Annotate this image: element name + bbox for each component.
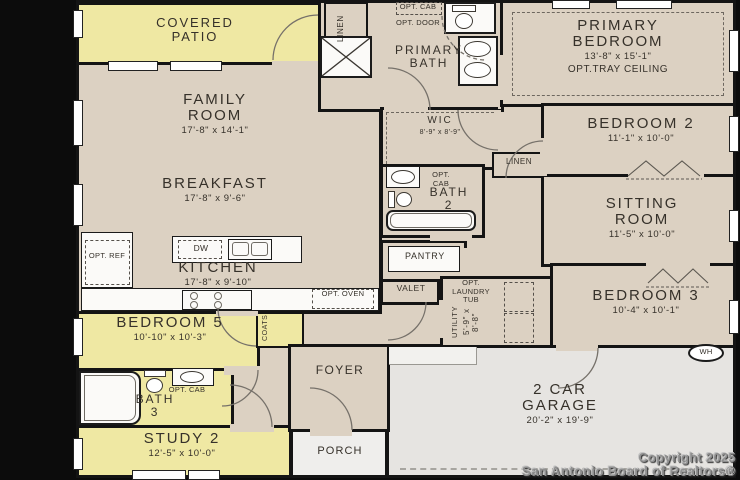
- door-gap-pantry: [462, 248, 469, 276]
- door-gap-primary-bedroom: [499, 55, 506, 100]
- window: [552, 0, 590, 9]
- wic-label: WIC 8'-9" x 8'-9": [390, 116, 490, 136]
- foyer-label: FOYER: [302, 364, 378, 377]
- breakfast-label: BREAKFAST 17'-8" x 9'-6": [105, 176, 325, 204]
- bath3-label: BATH 3: [128, 393, 182, 419]
- opt-cab-top-label: OPT. CAB: [398, 3, 438, 12]
- window: [108, 61, 158, 71]
- window: [73, 100, 83, 146]
- sitting-dims: 11'-5" x 10'-0": [572, 230, 712, 240]
- garage-dims: 20'-2" x 19'-9": [480, 416, 640, 426]
- window: [73, 318, 83, 356]
- window: [729, 210, 739, 242]
- watermark-copyright: Copyright 2025: [522, 451, 736, 465]
- washer-box: [504, 282, 534, 312]
- pantry-label: PANTRY: [392, 252, 458, 262]
- study2-name: STUDY 2: [92, 431, 272, 447]
- opt-ref-box: [85, 240, 130, 285]
- window: [188, 470, 220, 480]
- floor-plan: COVERED PATIO FAMILY ROOM 17'-8" x 14'-1…: [0, 0, 740, 480]
- utility-dims: 5'-9" x 8'-8": [462, 298, 480, 346]
- toilet-tank: [144, 370, 166, 377]
- burner: [190, 301, 198, 309]
- sitting-name: SITTING ROOM: [596, 196, 688, 228]
- kitchen-label: KITCHEN 17'-8" x 9'-10": [128, 260, 308, 288]
- burner: [214, 292, 222, 300]
- breakfast-name: BREAKFAST: [105, 176, 325, 192]
- bedroom5-name: BEDROOM 5: [88, 315, 252, 331]
- door-gap-garage: [556, 343, 598, 351]
- window: [729, 30, 739, 72]
- bath2-label: BATH 2: [424, 186, 474, 212]
- primary-bedroom-dims: 13'-8" x 15'-1": [508, 52, 728, 62]
- family-room-label: FAMILY ROOM 17'-8" x 14'-1": [140, 92, 290, 137]
- toilet-tank: [452, 5, 476, 12]
- opt-door-label: OPT. DOOR: [396, 19, 440, 28]
- primary-bedroom-name: PRIMARY BEDROOM: [546, 18, 691, 50]
- dw-label: DW: [182, 244, 220, 253]
- bedroom3-dims: 10'-4" x 10'-1": [566, 306, 726, 316]
- bath3-name: BATH 3: [135, 393, 175, 419]
- kitchen-dims: 17'-8" x 9'-10": [128, 278, 308, 288]
- valet-label: VALET: [384, 284, 438, 293]
- sitting-label: SITTING ROOM 11'-5" x 10'-0": [572, 196, 712, 241]
- window: [73, 438, 83, 470]
- family-room-dims: 17'-8" x 14'-1": [140, 126, 290, 136]
- primary-bath-label: PRIMARY BATH: [374, 44, 484, 70]
- door-gap-bedroom-2: [540, 138, 547, 176]
- watermark-board: San Antonio Board of Realtors®: [522, 465, 736, 479]
- window: [73, 184, 83, 226]
- water-heater-label: WH: [690, 348, 722, 356]
- window: [616, 0, 672, 9]
- study2-dims: 12'-5" x 10'-0": [92, 449, 272, 459]
- bedroom2-name: BEDROOM 2: [556, 116, 726, 132]
- study2-label: STUDY 2 12'-5" x 10'-0": [92, 431, 272, 459]
- covered-patio-label: COVERED PATIO: [130, 16, 260, 44]
- garage-stoop: [389, 347, 477, 365]
- garage-label: 2 CAR GARAGE 20'-2" x 19'-9": [480, 382, 640, 427]
- bath2-sink: [391, 170, 415, 184]
- utility-name: UTILITY: [450, 298, 459, 346]
- door-gap-utility: [439, 300, 446, 338]
- opt-ref-label: OPT. REF: [86, 252, 128, 261]
- bedroom3-name: BEDROOM 3: [566, 288, 726, 304]
- door-gap-front-door: [310, 428, 352, 436]
- burner: [214, 301, 222, 309]
- linen-top-label: LINEN: [336, 10, 345, 48]
- porch-label: PORCH: [306, 446, 374, 458]
- covered-patio-name: COVERED PATIO: [145, 16, 245, 44]
- primary-bedroom-label: PRIMARY BEDROOM 13'-8" x 15'-1" OPT.TRAY…: [508, 18, 728, 75]
- bedroom2-dims: 11'-1" x 10'-0": [556, 134, 726, 144]
- toilet-bowl: [396, 192, 412, 207]
- family-room-name: FAMILY ROOM: [169, 92, 261, 124]
- garage-name: 2 CAR GARAGE: [514, 382, 606, 414]
- watermark: Copyright 2025 San Antonio Board of Real…: [522, 451, 736, 479]
- wic-dims: 8'-9" x 8'-9": [390, 129, 490, 137]
- coats-label: COATS: [262, 310, 269, 346]
- opt-oven-label: OPT. OVEN: [316, 290, 370, 299]
- window: [729, 300, 739, 334]
- door-gap-patio: [272, 61, 318, 69]
- burner: [190, 292, 198, 300]
- linen-hall-label: LINEN: [496, 158, 542, 167]
- breakfast-dims: 17'-8" x 9'-6": [105, 194, 325, 204]
- window: [73, 10, 83, 38]
- bedroom5-label: BEDROOM 5 10'-10" x 10'-3": [88, 315, 252, 343]
- bedroom2-label: BEDROOM 2 11'-1" x 10'-0": [556, 116, 726, 144]
- primary-bath-name: PRIMARY BATH: [390, 44, 468, 70]
- bath3-sink: [180, 371, 204, 383]
- sink-basin: [251, 242, 268, 256]
- window: [132, 470, 186, 480]
- door-gap-bedroom-3: [646, 262, 710, 269]
- window: [170, 61, 222, 71]
- door-gap-sitting: [628, 173, 704, 180]
- dryer-box: [504, 313, 534, 343]
- door-gap-wic: [494, 110, 501, 152]
- door-gap-bath-3: [224, 366, 260, 375]
- bathtub-inner: [390, 213, 472, 228]
- bedroom5-dims: 10'-10" x 10'-3": [88, 333, 252, 343]
- bath2-name: BATH 2: [429, 186, 469, 212]
- toilet-tank: [388, 191, 395, 208]
- primary-bedroom-note: OPT.TRAY CEILING: [508, 65, 728, 76]
- wic-name: WIC: [390, 116, 490, 127]
- toilet-bowl: [455, 13, 473, 29]
- shower: [320, 36, 372, 78]
- bedroom3-label: BEDROOM 3 10'-4" x 10'-1": [566, 288, 726, 316]
- kitchen-name: KITCHEN: [128, 260, 308, 276]
- door-gap-bath-2: [430, 234, 472, 241]
- room-foyer: [288, 344, 390, 432]
- sink-basin: [232, 242, 249, 256]
- window: [729, 116, 739, 152]
